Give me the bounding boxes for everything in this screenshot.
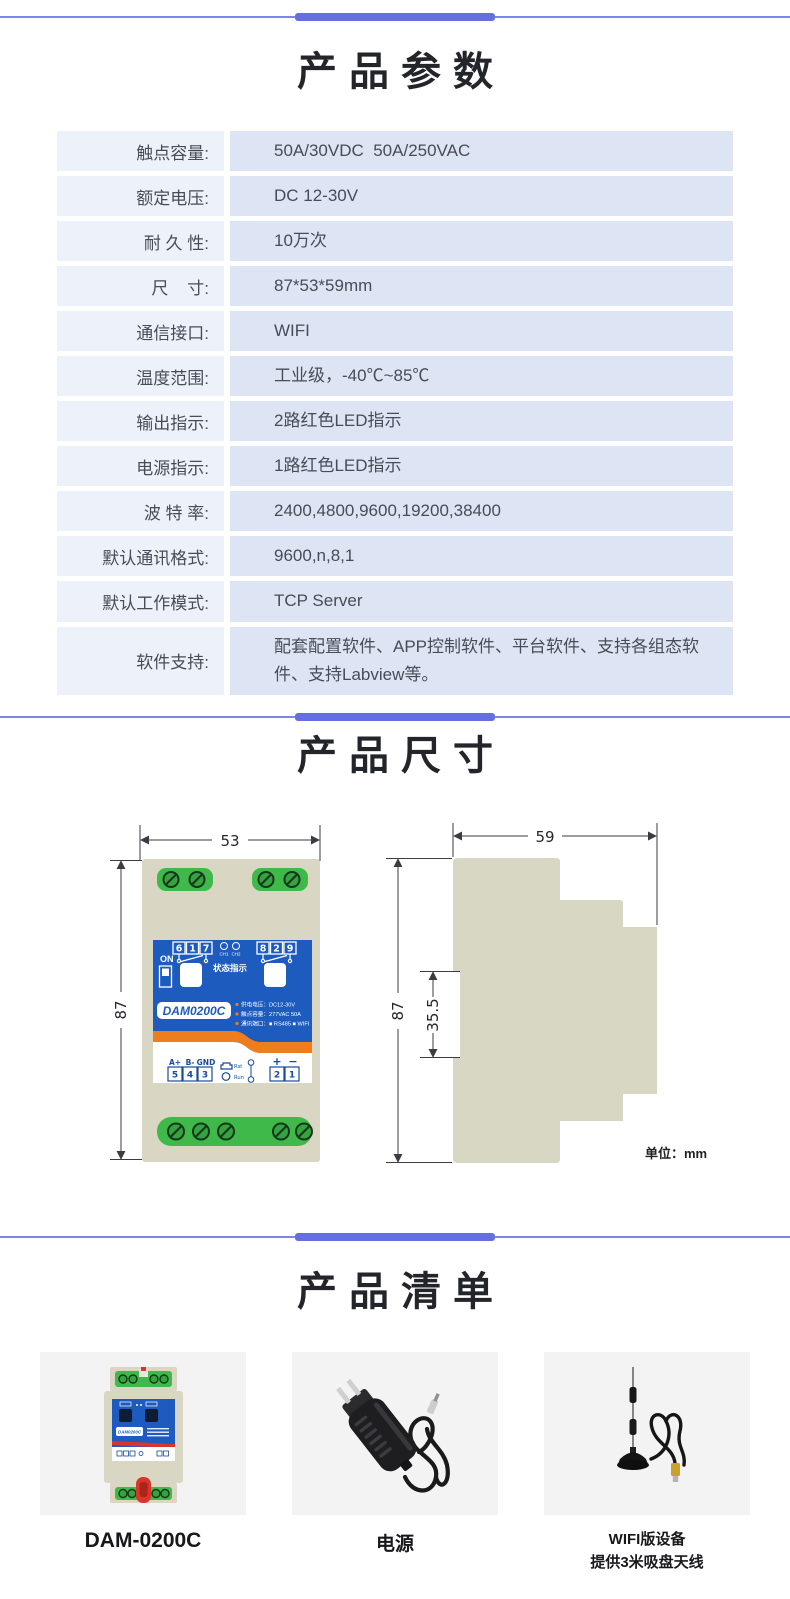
table-row: 额定电压: DC 12-30V xyxy=(57,176,733,216)
terminal-block-top-right xyxy=(252,868,308,891)
rst-label: Rst xyxy=(234,1064,242,1070)
barrel-connector xyxy=(426,1392,441,1414)
power-label: + xyxy=(272,1055,281,1068)
spec-value: 87*53*59mm xyxy=(230,266,733,306)
section-divider xyxy=(0,16,790,18)
spec-table: 触点容量: 50A/30VDC 50A/250VAC 额定电压: DC 12-3… xyxy=(57,131,733,695)
product-caption: DAM-0200C xyxy=(85,1529,202,1553)
dam0200c-photo-art: DAM0200C xyxy=(86,1361,201,1506)
spec-label: 尺 寸: xyxy=(57,266,224,306)
product-name-line1: WIFI版设备 xyxy=(590,1529,703,1552)
io-label: GND xyxy=(197,1058,216,1067)
spec-value: 1路红色LED指示 xyxy=(230,446,733,486)
terminal-block-bottom xyxy=(157,1117,312,1146)
terminal-number: 8 xyxy=(260,944,267,955)
spec-label: 触点容量: xyxy=(57,131,224,171)
spec-value: DC 12-30V xyxy=(230,176,733,216)
product-card-power: 电源 xyxy=(292,1352,498,1574)
divider-accent xyxy=(295,713,495,721)
table-row: 默认通讯格式: 9600,n,8,1 xyxy=(57,536,733,576)
relay-body xyxy=(264,963,286,987)
sma-connector xyxy=(671,1463,680,1482)
io-terminal-number: 3 xyxy=(202,1071,208,1081)
power-label: − xyxy=(288,1055,297,1068)
spec-value: WIFI xyxy=(230,311,733,351)
spec-value: 9600,n,8,1 xyxy=(230,536,733,576)
svg-text:DAM0200C: DAM0200C xyxy=(118,1430,142,1435)
terminal-number: 9 xyxy=(287,944,294,955)
product-name-line2: 提供3米吸盘天线 xyxy=(590,1552,703,1575)
product-caption: 电源 xyxy=(376,1529,414,1556)
product-photo xyxy=(544,1352,750,1515)
bullet-icon xyxy=(235,1003,238,1006)
side-view-drawing: 59 87 35.5 xyxy=(370,815,680,1165)
section-title-list: 产品清单 xyxy=(0,1272,790,1312)
antenna-cable xyxy=(651,1414,675,1462)
dim-front-height: 87 xyxy=(112,1000,130,1019)
unit-note: 单位：mm xyxy=(645,1143,707,1162)
terminal-number: 7 xyxy=(203,944,210,955)
table-row: 耐 久 性: 10万次 xyxy=(57,221,733,261)
product-caption: WIFI版设备 提供3米吸盘天线 xyxy=(590,1529,703,1574)
dip-switch-knob xyxy=(162,969,169,977)
table-row: 通信接口: WIFI xyxy=(57,311,733,351)
product-name: DAM-0200C xyxy=(85,1529,202,1552)
spec-label: 电源指示: xyxy=(57,446,224,486)
bullet-icon xyxy=(235,1012,238,1015)
front-view-drawing: 53 87 xyxy=(100,815,350,1165)
product-photo xyxy=(292,1352,498,1515)
side-profile xyxy=(453,858,657,1163)
dim-side-groove: 35.5 xyxy=(424,998,442,1031)
spec-label: 耐 久 性: xyxy=(57,221,224,261)
divider-accent xyxy=(295,13,495,21)
power-terminal-number: 1 xyxy=(289,1071,295,1081)
bullet-icon xyxy=(235,1022,238,1025)
dim-side-height: 87 xyxy=(389,1001,407,1020)
table-row: 电源指示: 1路红色LED指示 xyxy=(57,446,733,486)
status-label: 状态指示 xyxy=(213,963,248,973)
product-photo: DAM0200C xyxy=(40,1352,246,1515)
section-title-params: 产品参数 xyxy=(0,52,790,92)
io-terminal-number: 4 xyxy=(187,1071,193,1081)
table-row: 波 特 率: 2400,4800,9600,19200,38400 xyxy=(57,491,733,531)
on-label: ON xyxy=(160,954,174,964)
model-text: DAM0200C xyxy=(163,1004,226,1018)
spec-value: 工业级，-40℃~85℃ xyxy=(230,356,733,396)
terminal-block-top-left xyxy=(157,868,213,891)
io-terminal-number: 5 xyxy=(172,1071,178,1081)
table-row: 默认工作模式: TCP Server xyxy=(57,581,733,621)
terminal-number: 2 xyxy=(273,944,280,955)
ch1-label: CH1 xyxy=(219,952,228,957)
table-row: 尺 寸: 87*53*59mm xyxy=(57,266,733,306)
terminal-number: 1 xyxy=(189,944,196,955)
spec-line: 供电电压：DC12-30V xyxy=(241,1001,295,1009)
product-name: 电源 xyxy=(376,1534,414,1555)
spec-value: 2路红色LED指示 xyxy=(230,401,733,441)
relay-body xyxy=(180,963,202,987)
spec-label: 波 特 率: xyxy=(57,491,224,531)
spec-value: 2400,4800,9600,19200,38400 xyxy=(230,491,733,531)
table-row: 温度范围: 工业级，-40℃~85℃ xyxy=(57,356,733,396)
spec-label: 默认工作模式: xyxy=(57,581,224,621)
spec-label: 默认通讯格式: xyxy=(57,536,224,576)
product-spec-page: 产品参数 触点容量: 50A/30VDC 50A/250VAC 额定电压: DC… xyxy=(0,0,790,1599)
spec-label: 软件支持: xyxy=(57,627,224,695)
antenna-photo-art xyxy=(587,1359,707,1509)
spec-label: 输出指示: xyxy=(57,401,224,441)
terminal-number: 6 xyxy=(176,944,183,955)
spec-label: 通信接口: xyxy=(57,311,224,351)
run-label: Run xyxy=(234,1075,244,1081)
ch2-label: CH2 xyxy=(231,952,240,957)
io-label: A+ xyxy=(169,1058,181,1067)
dim-side-width: 59 xyxy=(535,828,554,846)
section-title-dimensions: 产品尺寸 xyxy=(0,736,790,776)
spec-value: TCP Server xyxy=(230,581,733,621)
divider-accent xyxy=(295,1233,495,1241)
table-row: 触点容量: 50A/30VDC 50A/250VAC xyxy=(57,131,733,171)
dim-front-width: 53 xyxy=(220,832,239,850)
table-row: 软件支持: 配套配置软件、APP控制软件、平台软件、支持各组态软件、支持Labv… xyxy=(57,627,733,695)
spec-label: 额定电压: xyxy=(57,176,224,216)
section-divider xyxy=(0,1236,790,1238)
section-divider xyxy=(0,716,790,718)
spec-value: 50A/30VDC 50A/250VAC xyxy=(230,131,733,171)
product-card-dam0200c: DAM0200C xyxy=(40,1352,246,1574)
power-terminal-number: 2 xyxy=(274,1071,280,1081)
spec-value: 配套配置软件、APP控制软件、平台软件、支持各组态软件、支持Labview等。 xyxy=(230,627,733,695)
table-row: 输出指示: 2路红色LED指示 xyxy=(57,401,733,441)
power-adapter-photo-art xyxy=(335,1359,455,1509)
spec-line: 触点容量：277VAC 50A xyxy=(241,1010,301,1018)
io-label: B- xyxy=(186,1058,195,1067)
spec-label: 温度范围: xyxy=(57,356,224,396)
product-card-antenna: WIFI版设备 提供3米吸盘天线 xyxy=(544,1352,750,1574)
spec-line: 通讯端口：■ RS485 ■ WIFI xyxy=(241,1020,310,1028)
product-cards: DAM0200C xyxy=(40,1352,750,1574)
spec-value: 10万次 xyxy=(230,221,733,261)
